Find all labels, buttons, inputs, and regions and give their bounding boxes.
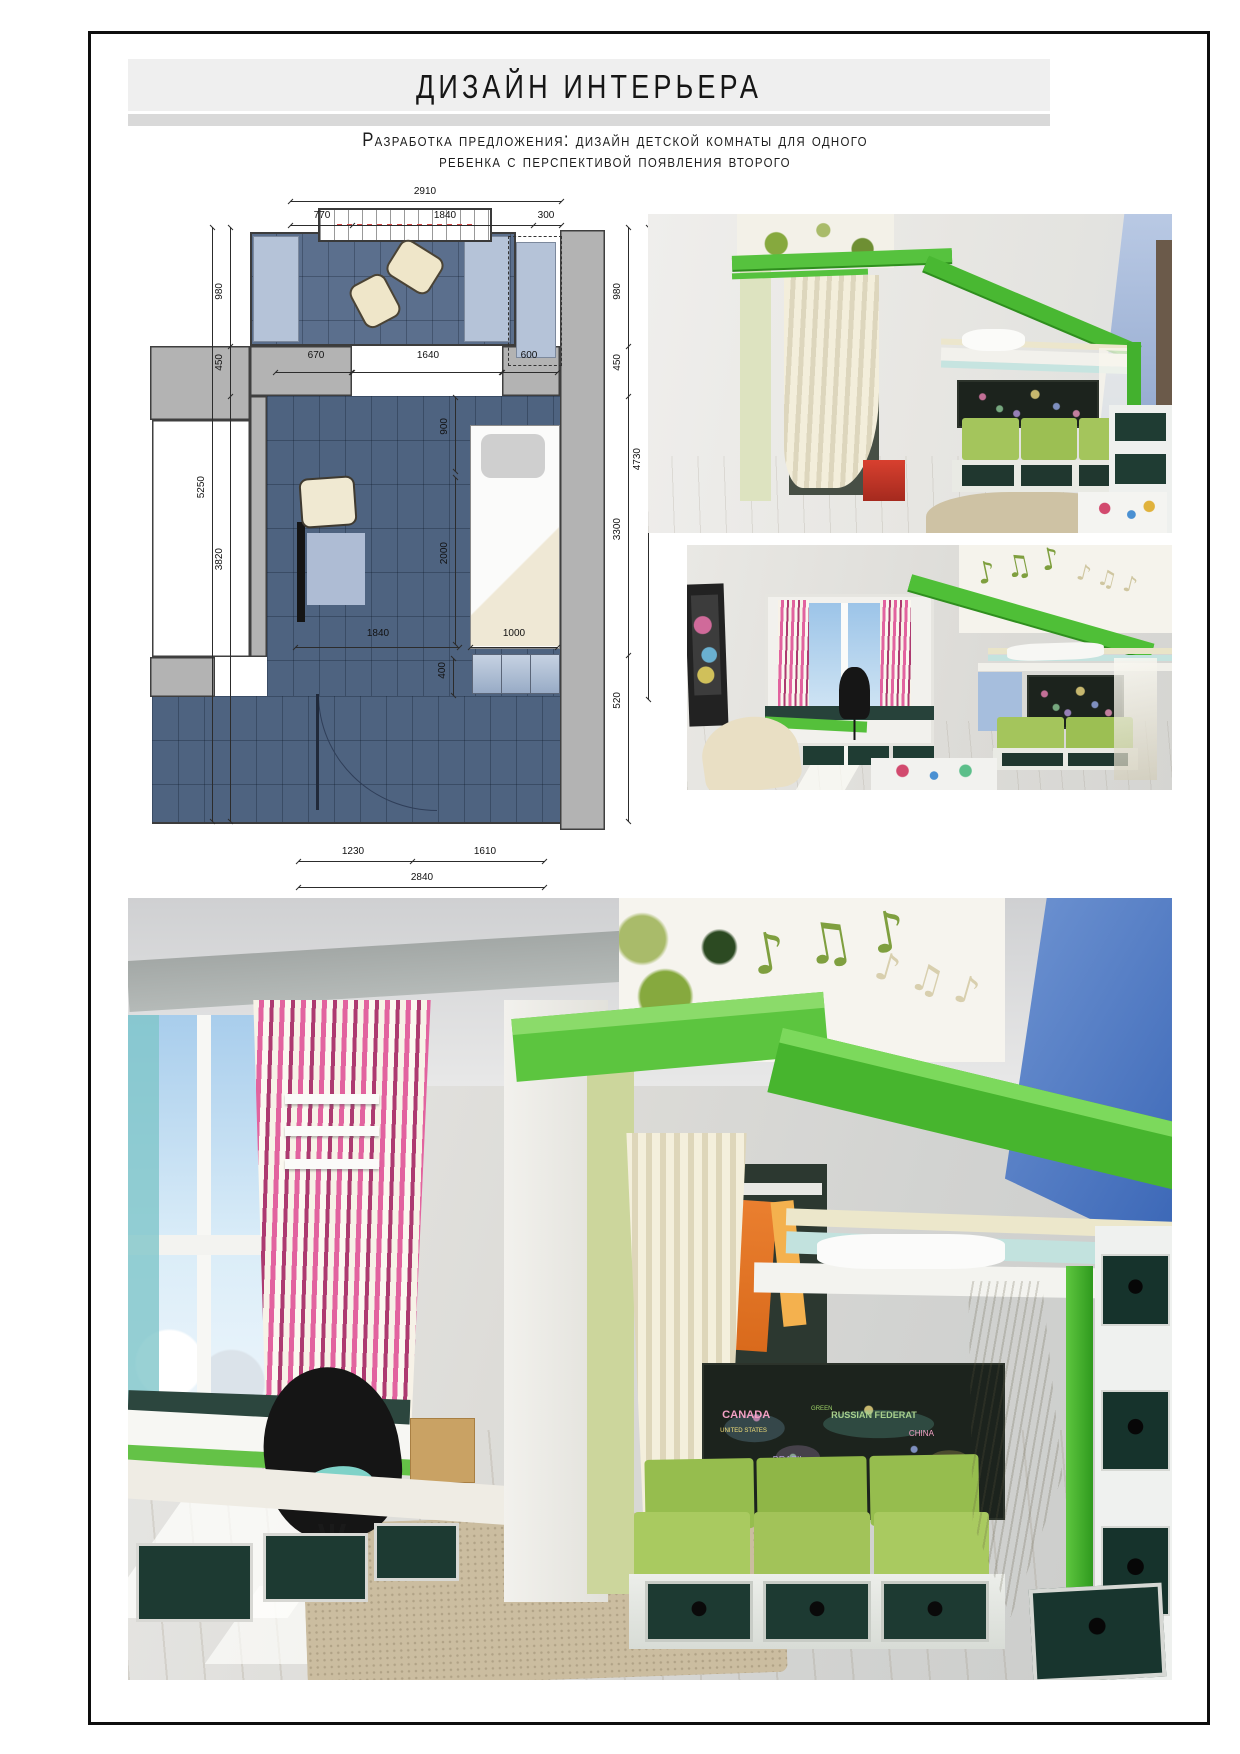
shelf bbox=[285, 1094, 379, 1104]
dim-line bbox=[453, 658, 454, 696]
dim-line bbox=[290, 225, 562, 226]
plan-rug bbox=[307, 533, 365, 605]
sofa-cushion bbox=[874, 1512, 990, 1578]
drawer-front bbox=[962, 465, 1013, 486]
mattress bbox=[817, 1234, 1005, 1269]
header-strip bbox=[128, 114, 1050, 126]
pillow bbox=[962, 329, 1025, 351]
dim-line bbox=[628, 227, 629, 822]
dim-label: 4730 bbox=[632, 448, 643, 470]
dim-label: 450 bbox=[612, 354, 623, 371]
platform-drawers bbox=[128, 1508, 525, 1633]
plan-wall-left-band bbox=[150, 346, 250, 420]
stair-drawer bbox=[1115, 413, 1165, 441]
dim-label: 450 bbox=[214, 354, 225, 371]
drawer-front bbox=[1002, 753, 1063, 765]
dim-label: 1840 bbox=[367, 628, 389, 639]
stair-drawer bbox=[1115, 454, 1165, 485]
drawer-front bbox=[263, 1533, 368, 1602]
plan-desk-chair bbox=[298, 475, 357, 529]
dim-label: 3820 bbox=[214, 548, 225, 570]
sofa-cushion bbox=[962, 418, 1018, 459]
dim-line bbox=[230, 227, 231, 822]
render-room-overview-photo: ♪ ♫ ♪ ♪ ♫ ♪ bbox=[687, 545, 1172, 790]
drawer-front bbox=[645, 1581, 753, 1643]
plan-bed bbox=[470, 425, 560, 649]
curtain-pink-right bbox=[880, 600, 911, 715]
dim-line bbox=[352, 372, 502, 373]
plan-window-bay-left bbox=[253, 236, 299, 342]
dim-label: 1610 bbox=[474, 846, 496, 857]
dim-line bbox=[298, 887, 545, 888]
dim-line bbox=[212, 227, 213, 822]
render-loft-bed-photo bbox=[648, 214, 1172, 533]
map-word: UNITED STATES bbox=[720, 1428, 767, 1434]
tv-screen bbox=[691, 595, 722, 695]
drawer-front bbox=[763, 1581, 871, 1643]
plan-step bbox=[531, 655, 559, 693]
header-bar: ДИЗАЙН ИНТЕРЬЕРА bbox=[128, 59, 1050, 111]
curtain-pink-left bbox=[778, 600, 809, 715]
stair-drawer bbox=[1101, 1390, 1170, 1471]
map-word: CHINA bbox=[909, 1429, 935, 1438]
dim-label: 2840 bbox=[411, 872, 433, 883]
dim-label: 1840 bbox=[434, 210, 456, 221]
cardboard-box bbox=[410, 1418, 475, 1483]
door-dark bbox=[1156, 240, 1172, 425]
dim-label: 600 bbox=[521, 350, 538, 361]
map-word: RUSSIAN FEDERAT bbox=[831, 1410, 917, 1420]
drawer-front bbox=[803, 746, 844, 766]
stair-bottom-drawer bbox=[1029, 1583, 1167, 1680]
dim-line bbox=[470, 647, 558, 648]
dim-label: 1640 bbox=[417, 350, 439, 361]
music-notes: ♪ ♫ ♪ bbox=[973, 545, 1063, 593]
dim-label: 1230 bbox=[342, 846, 364, 857]
shelf bbox=[285, 1159, 379, 1169]
plan-wall-left-thin bbox=[250, 396, 267, 657]
sofa-cushion bbox=[997, 717, 1064, 751]
music-notes: ♪ ♫ ♪ bbox=[1074, 560, 1140, 599]
map-word: GREEN bbox=[811, 1406, 833, 1412]
floor-plan: 2910 770 1840 300 5250 980 450 3820 670 … bbox=[150, 180, 662, 895]
dim-label: 3300 bbox=[612, 518, 623, 540]
green-post bbox=[1066, 1266, 1093, 1641]
dim-label: 770 bbox=[314, 210, 331, 221]
plan-step bbox=[502, 655, 531, 693]
plan-step bbox=[473, 655, 502, 693]
wardrobe-green-panel bbox=[587, 1031, 634, 1594]
plan-steps bbox=[472, 654, 560, 694]
desk-chair-black bbox=[839, 667, 870, 719]
drawer-front bbox=[374, 1523, 459, 1582]
dim-line bbox=[502, 372, 558, 373]
drawer-front bbox=[136, 1543, 253, 1622]
window-alcove bbox=[765, 594, 935, 746]
dim-label: 2000 bbox=[439, 542, 450, 564]
plan-wall-mid-left bbox=[250, 346, 352, 396]
page-title: ДИЗАЙН ИНТЕРЬЕРА bbox=[416, 68, 762, 106]
sofa-seat-cushions bbox=[634, 1512, 989, 1578]
subtitle-line-2: ребенка с перспективой появления второго bbox=[267, 151, 962, 172]
shelf bbox=[285, 1126, 379, 1136]
subtitle-line-1: Разработка предложения: дизайн детской к… bbox=[267, 130, 962, 151]
dim-line bbox=[455, 397, 456, 472]
dim-label: 400 bbox=[437, 662, 448, 679]
plan-bed-pillow bbox=[481, 434, 545, 478]
render-main-view-photo: ♪ ♫ ♪ ♪ ♫ ♪ bbox=[128, 898, 1172, 1680]
dim-line bbox=[455, 477, 456, 645]
play-table bbox=[1078, 492, 1167, 533]
subtitle: Разработка предложения: дизайн детской к… bbox=[220, 130, 1010, 172]
drawer-front bbox=[1021, 465, 1072, 486]
red-box bbox=[863, 460, 905, 501]
wall-shelves bbox=[285, 1094, 379, 1172]
sheer-canopy bbox=[1114, 658, 1158, 781]
plan-wardrobe-dashed bbox=[508, 236, 562, 366]
plan-adjacent-room bbox=[152, 420, 250, 657]
dim-line bbox=[275, 372, 352, 373]
plan-bed-blanket bbox=[471, 516, 559, 646]
curtain-cream bbox=[784, 275, 878, 489]
dim-label: 980 bbox=[612, 283, 623, 300]
chair-legs bbox=[843, 716, 867, 740]
plan-wall-left-lower bbox=[150, 657, 215, 697]
plan-desk bbox=[297, 522, 305, 622]
toy-table bbox=[871, 758, 997, 790]
wardrobe-green-panel bbox=[740, 265, 771, 501]
dim-label: 1000 bbox=[503, 628, 525, 639]
dim-label: 5250 bbox=[196, 476, 207, 498]
stair-drawer bbox=[1101, 1254, 1170, 1326]
design-sheet: ДИЗАЙН ИНТЕРЬЕРА Разработка предложения:… bbox=[0, 0, 1240, 1754]
dim-label: 900 bbox=[439, 418, 450, 435]
dim-label: 980 bbox=[214, 283, 225, 300]
tv-frame bbox=[687, 584, 728, 727]
sofa-cushion bbox=[1021, 418, 1077, 459]
map-word: CANADA bbox=[722, 1409, 770, 1421]
music-notes: ♪ ♫ ♪ bbox=[870, 943, 985, 1015]
teal-sheer-curtain bbox=[128, 1015, 159, 1437]
dim-label: 520 bbox=[612, 692, 623, 709]
sofa-cushion bbox=[634, 1512, 750, 1578]
dim-line bbox=[290, 201, 562, 202]
dim-line bbox=[295, 647, 460, 648]
drawer-front bbox=[881, 1581, 989, 1643]
sofa-cushion bbox=[754, 1512, 870, 1578]
dim-label: 670 bbox=[308, 350, 325, 361]
plan-wall-right bbox=[560, 230, 605, 830]
dim-line bbox=[298, 861, 545, 862]
window-bar bbox=[197, 1015, 211, 1422]
dim-label: 300 bbox=[538, 210, 555, 221]
plan-door-leaf bbox=[316, 694, 319, 810]
dim-label: 2910 bbox=[414, 186, 436, 197]
sofa-base bbox=[629, 1574, 1005, 1648]
plan-window-bay-right bbox=[464, 236, 510, 342]
